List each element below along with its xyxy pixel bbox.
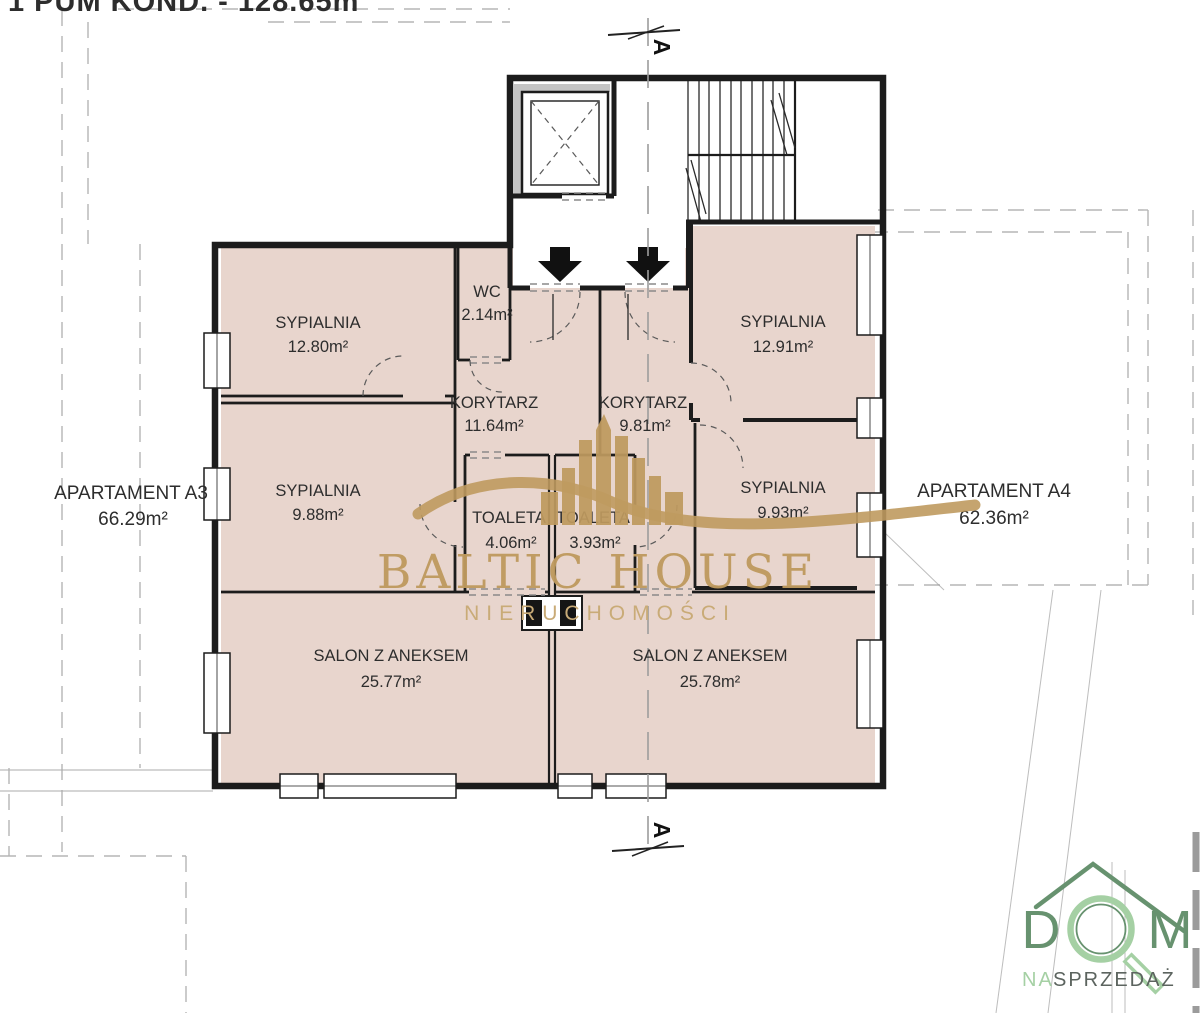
apartment-a4-name: APARTAMENT A4 <box>917 481 1071 502</box>
room-label-sypialnia1-area: 12.80m² <box>288 338 349 356</box>
section-letter-top: A <box>649 39 675 56</box>
logo-letter-m: M <box>1148 900 1193 960</box>
page-header-area-sum: 1 PUM KOND. - 128.65m <box>8 0 359 18</box>
watermark-tagline-text: NIERUCHOMOŚCI <box>464 601 736 625</box>
elevator-shaft <box>522 92 608 194</box>
room-label-salon2-area: 25.78m² <box>680 673 741 691</box>
section-marker-top: A <box>608 26 680 55</box>
apartment-a4-area: 62.36m² <box>959 508 1029 529</box>
room-label-salon1-area: 25.77m² <box>361 673 422 691</box>
room-label-korytarz-a4-name: KORYTARZ <box>599 394 687 412</box>
room-label-salon1-name: SALON Z ANEKSEM <box>314 647 469 665</box>
apartment-a3-name: APARTAMENT A3 <box>54 483 208 504</box>
logo-magnifier-icon <box>1071 899 1132 960</box>
room-label-korytarz-a3-area: 11.64m² <box>464 417 524 435</box>
room-label-korytarz-a4-area: 9.81m² <box>619 417 671 435</box>
elevator <box>512 78 614 200</box>
logo-subtitle-na: NA <box>1022 969 1054 991</box>
room-label-wc-area: 2.14m² <box>461 306 513 324</box>
room-label-sypialnia1-name: SYPIALNIA <box>275 314 360 332</box>
room-label-sypialnia3-area: 9.88m² <box>292 506 344 524</box>
watermark-brand-text: BALTIC HOUSE <box>377 545 819 600</box>
apartment-a3-area: 66.29m² <box>98 509 168 530</box>
staircase <box>686 81 881 222</box>
floor-plan-page: A A SYPIALNIA 12.80m² WC 2.14m² KORYTARZ… <box>0 0 1200 1013</box>
logo-subtitle-sprzedaz: SPRZEDAŻ <box>1053 968 1176 991</box>
room-label-sypialnia3-name: SYPIALNIA <box>275 482 360 500</box>
room-label-sypialnia4-name: SYPIALNIA <box>740 479 825 497</box>
room-label-sypialnia2-area: 12.91m² <box>753 338 814 356</box>
floor-plan-drawing: A A SYPIALNIA 12.80m² WC 2.14m² KORYTARZ… <box>0 0 1200 1013</box>
room-label-sypialnia2-name: SYPIALNIA <box>740 313 825 331</box>
room-label-salon2-name: SALON Z ANEKSEM <box>633 647 788 665</box>
section-letter-bottom: A <box>649 822 675 839</box>
room-label-korytarz-a3-name: KORYTARZ <box>450 394 538 412</box>
room-label-wc-name: WC <box>473 283 501 301</box>
logo-letter-d: D <box>1022 900 1061 960</box>
room-label-toaleta1-name: TOALETA <box>472 509 546 527</box>
agency-logo: D M NA SPRZEDAŻ <box>1022 864 1193 991</box>
